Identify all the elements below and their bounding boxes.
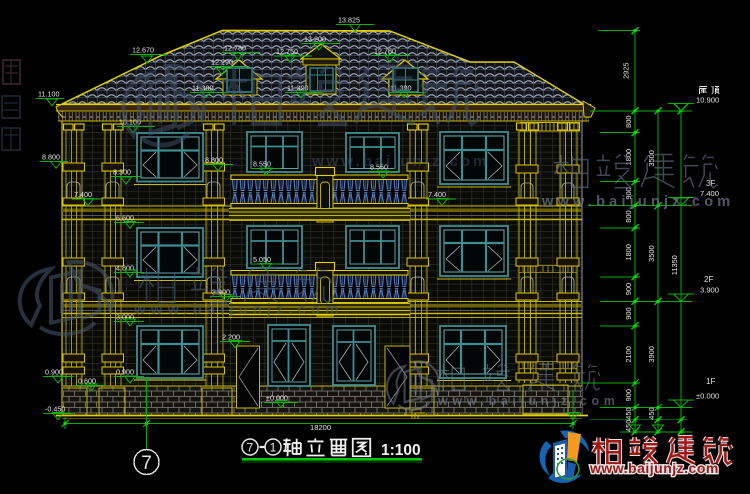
svg-text:450: 450 [647, 407, 656, 419]
svg-text:900: 900 [624, 389, 633, 401]
svg-text:11.100: 11.100 [38, 90, 59, 99]
svg-text:11350: 11350 [670, 255, 679, 275]
svg-text:2F: 2F [704, 275, 713, 284]
svg-text:8.300: 8.300 [113, 168, 131, 177]
svg-text:12.780: 12.780 [224, 44, 246, 53]
svg-text:1800: 1800 [624, 244, 633, 260]
svg-text:450: 450 [624, 420, 633, 432]
svg-text:7.400: 7.400 [428, 190, 446, 199]
svg-text:0.900: 0.900 [116, 368, 134, 377]
svg-text:3.900: 3.900 [700, 286, 719, 295]
svg-text:1:100: 1:100 [381, 442, 421, 459]
svg-text:8.550: 8.550 [253, 160, 271, 169]
svg-text:www.baijunjz.com: www.baijunjz.com [589, 460, 719, 476]
svg-text:1F: 1F [706, 377, 715, 386]
svg-text:www.baijunjz.com: www.baijunjz.com [133, 301, 343, 318]
svg-text:1: 1 [270, 441, 277, 455]
svg-text:www.baijunjz.com: www.baijunjz.com [311, 153, 489, 170]
svg-text:450: 450 [624, 407, 633, 419]
svg-text:-0.450: -0.450 [45, 405, 65, 414]
svg-text:800: 800 [624, 116, 633, 128]
svg-text:13.825: 13.825 [338, 16, 360, 25]
svg-text:3900: 3900 [647, 346, 656, 362]
svg-text:8.800: 8.800 [42, 153, 60, 162]
svg-text:2100: 2100 [624, 346, 633, 362]
svg-text:3500: 3500 [647, 245, 656, 261]
svg-text:7: 7 [141, 453, 152, 474]
svg-text:3500: 3500 [647, 150, 656, 166]
svg-text:900: 900 [624, 307, 633, 319]
svg-text:18200: 18200 [310, 423, 331, 432]
svg-text:0.900: 0.900 [45, 368, 63, 377]
svg-text:2925: 2925 [622, 62, 631, 78]
svg-text:900: 900 [624, 283, 633, 295]
svg-text:5.050: 5.050 [253, 255, 271, 264]
svg-text:±0.000: ±0.000 [266, 394, 288, 403]
svg-text:12.670: 12.670 [132, 46, 154, 55]
svg-text:7.400: 7.400 [74, 190, 92, 199]
svg-text:7: 7 [247, 441, 254, 455]
svg-text:10.900: 10.900 [696, 96, 719, 105]
svg-text:12.780: 12.780 [374, 47, 396, 56]
svg-text:8.800: 8.800 [205, 156, 223, 165]
svg-text:12.290: 12.290 [211, 58, 233, 67]
svg-text:13.200: 13.200 [304, 35, 326, 44]
svg-text:www.baijunjz.com: www.baijunjz.com [541, 194, 734, 210]
svg-text:±0.000: ±0.000 [696, 392, 719, 401]
svg-text:800: 800 [624, 210, 633, 222]
svg-text:www.baijunjz.com: www.baijunjz.com [437, 394, 619, 408]
